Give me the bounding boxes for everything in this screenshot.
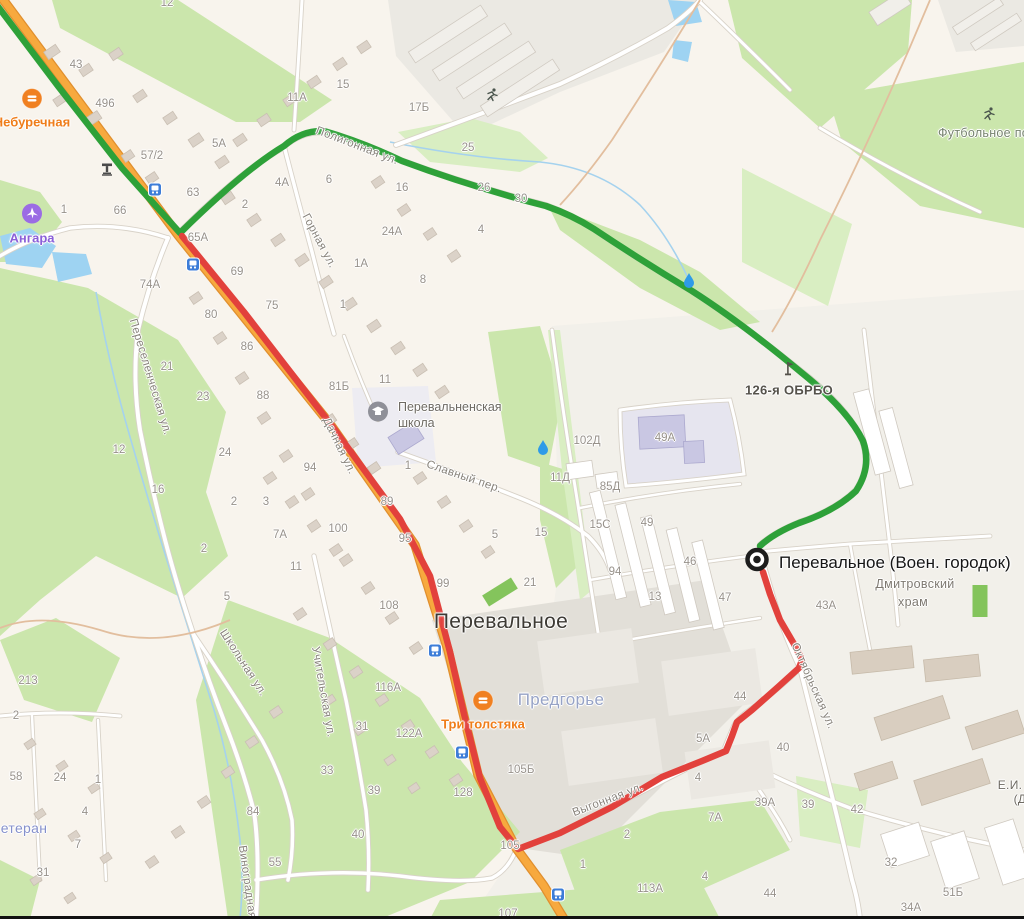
area-label: Предгорье — [518, 690, 604, 710]
house-number: 44 — [764, 888, 777, 900]
street-name: Школьная ул. — [217, 627, 269, 698]
street-name: Учительская ул. — [309, 646, 337, 739]
house-number: 47 — [719, 592, 732, 604]
house-number: 213 — [18, 675, 37, 687]
house-number: 85Д — [600, 481, 621, 493]
house-number: 81Б — [329, 381, 349, 393]
house-number: 63 — [187, 187, 200, 199]
house-number: 44 — [734, 691, 747, 703]
house-number: 39А — [755, 797, 775, 809]
map-canvas[interactable]: Перевальное Перевальное (Воен. городок) … — [0, 0, 1024, 919]
house-number: 99 — [437, 578, 450, 590]
street-name: Выгонная ул. — [571, 781, 645, 819]
house-number: 1А — [354, 258, 368, 270]
airport-poi-icon[interactable] — [21, 203, 43, 230]
water-spring-icon — [537, 440, 549, 460]
poi-label: Три толстяка — [441, 717, 525, 732]
house-number: 43 — [70, 59, 83, 71]
house-number: 89 — [381, 496, 394, 508]
house-number: 113А — [637, 883, 663, 895]
house-number: 32 — [885, 857, 898, 869]
area-label: Е.И. — [998, 778, 1023, 792]
restaurant-poi-icon[interactable] — [472, 690, 494, 717]
house-number: 2 — [624, 829, 630, 841]
house-number: 128 — [453, 787, 472, 799]
house-number: 24 — [219, 447, 232, 459]
area-label: (Д — [1014, 792, 1024, 806]
house-number: 24 — [54, 772, 67, 784]
house-number: 15 — [337, 79, 350, 91]
house-number: 7А — [708, 812, 722, 824]
house-number: 4 — [478, 224, 484, 236]
town-label: Перевальное — [434, 610, 568, 634]
house-number: 5А — [696, 733, 710, 745]
street-name: Виноградная — [236, 845, 258, 919]
house-number: 25 — [462, 142, 475, 154]
house-number: 13 — [649, 591, 662, 603]
house-number: 33 — [321, 765, 334, 777]
house-number: 65А — [188, 232, 208, 244]
house-number: 100 — [328, 523, 347, 535]
house-number: 31 — [356, 721, 369, 733]
house-number: 94 — [609, 566, 622, 578]
house-number: 1 — [405, 460, 411, 472]
house-number: 16 — [396, 182, 409, 194]
house-number: 8 — [420, 274, 426, 286]
area-label: 126-я ОБРБО — [745, 383, 833, 398]
house-number: 23 — [197, 391, 210, 403]
house-number: 6 — [326, 174, 332, 186]
house-number: 51Б — [943, 887, 963, 899]
bus-stop-icon[interactable] — [551, 888, 565, 907]
house-number: 49 — [641, 517, 654, 529]
house-number: 7 — [75, 839, 81, 851]
school-label: Перевальненскаяшкола — [398, 399, 502, 432]
house-number: 42 — [851, 804, 864, 816]
house-number: 95 — [399, 533, 412, 545]
house-number: 55 — [269, 857, 282, 869]
house-number: 46 — [684, 556, 697, 568]
house-number: 74А — [140, 279, 160, 291]
house-number: 15 — [535, 527, 548, 539]
house-number: 86 — [241, 341, 254, 353]
bus-stop-icon[interactable] — [148, 183, 162, 202]
house-number: 116А — [375, 682, 401, 694]
house-number: 57/2 — [141, 150, 163, 162]
area-label: храм — [898, 595, 928, 609]
house-number: 21 — [524, 577, 537, 589]
house-number: 24А — [382, 226, 402, 238]
restaurant-poi-icon[interactable] — [21, 88, 43, 115]
house-number: 75 — [266, 300, 279, 312]
street-name: Славный пер. — [425, 459, 503, 496]
street-name: Горная ул. — [300, 212, 339, 270]
house-number: 2 — [242, 199, 248, 211]
house-number: 11 — [290, 561, 302, 573]
house-number: 26 — [478, 182, 491, 194]
runner-sport-icon — [982, 107, 996, 126]
house-number: 43А — [816, 600, 836, 612]
house-number: 39 — [368, 785, 381, 797]
house-number: 11Д — [550, 472, 570, 484]
house-number: 5 — [492, 529, 498, 541]
house-number: 122А — [396, 728, 423, 740]
house-number: 69 — [231, 266, 244, 278]
house-number: 17Б — [409, 102, 429, 114]
house-number: 16 — [152, 484, 165, 496]
house-number: 30 — [515, 193, 528, 205]
house-number: 31 — [37, 867, 50, 879]
street-name: Полигонная ул. — [314, 125, 400, 168]
house-number: 2 — [13, 710, 19, 722]
bus-stop-icon[interactable] — [186, 258, 200, 277]
house-number: 1 — [580, 859, 586, 871]
runner-sport-icon — [485, 88, 499, 107]
house-number: 1 — [95, 774, 101, 786]
house-number: 2 — [231, 496, 237, 508]
area-label: Футбольное по — [938, 126, 1024, 140]
bus-stop-icon[interactable] — [455, 746, 469, 765]
house-number: 4А — [275, 177, 289, 189]
house-number: 1 — [61, 204, 67, 216]
house-number: 11А — [287, 92, 307, 104]
house-number: 94 — [304, 462, 317, 474]
street-name: Переселенческая ул. — [127, 317, 174, 436]
house-number: 34А — [901, 902, 921, 914]
house-number: 12 — [161, 0, 174, 9]
monument-icon — [100, 163, 114, 182]
destination-label: Перевальное (Воен. городок) — [779, 553, 1011, 573]
house-number: 80 — [205, 309, 218, 321]
house-number: 496 — [95, 98, 114, 110]
house-number: 102Д — [574, 435, 601, 447]
poi-label: Ангара — [9, 231, 54, 246]
house-number: 12 — [113, 444, 126, 456]
house-number: 88 — [257, 390, 270, 402]
house-number: 105Б — [508, 764, 535, 776]
house-number: 4 — [702, 871, 708, 883]
house-number: 40 — [777, 742, 790, 754]
water-spring-icon — [683, 273, 695, 293]
house-number: 2 — [201, 543, 207, 555]
house-number: 4 — [695, 772, 701, 784]
area-label: Дмитровский — [875, 577, 954, 591]
house-number: 5 — [224, 591, 230, 603]
house-number: 5А — [212, 138, 226, 150]
destination-marker[interactable] — [744, 547, 770, 578]
house-number: 3 — [263, 496, 269, 508]
house-number: 108 — [379, 600, 398, 612]
house-number: 21 — [161, 361, 174, 373]
house-number: 105 — [500, 840, 519, 852]
street-name: Октябрьская ул. — [789, 641, 838, 731]
house-number: 66 — [114, 205, 127, 217]
house-number: 40 — [352, 829, 365, 841]
house-number: 1 — [340, 299, 346, 311]
house-number: 58 — [10, 771, 23, 783]
house-number: 4 — [82, 806, 88, 818]
poi-label: Небуречная — [0, 115, 70, 130]
school-poi-icon[interactable] — [367, 401, 389, 428]
house-number: 11 — [379, 374, 391, 386]
area-label: етеран — [1, 820, 47, 836]
house-number: 49А — [655, 432, 675, 444]
house-number: 7А — [273, 529, 287, 541]
house-number: 15С — [589, 519, 610, 531]
bus-stop-icon[interactable] — [428, 644, 442, 663]
street-name: Дачная ул. — [320, 416, 358, 477]
house-number: 39 — [802, 799, 815, 811]
military-unit-icon — [782, 361, 795, 381]
house-number: 84 — [247, 806, 260, 818]
map-labels-layer: Перевальное Перевальное (Воен. городок) … — [0, 0, 1024, 919]
